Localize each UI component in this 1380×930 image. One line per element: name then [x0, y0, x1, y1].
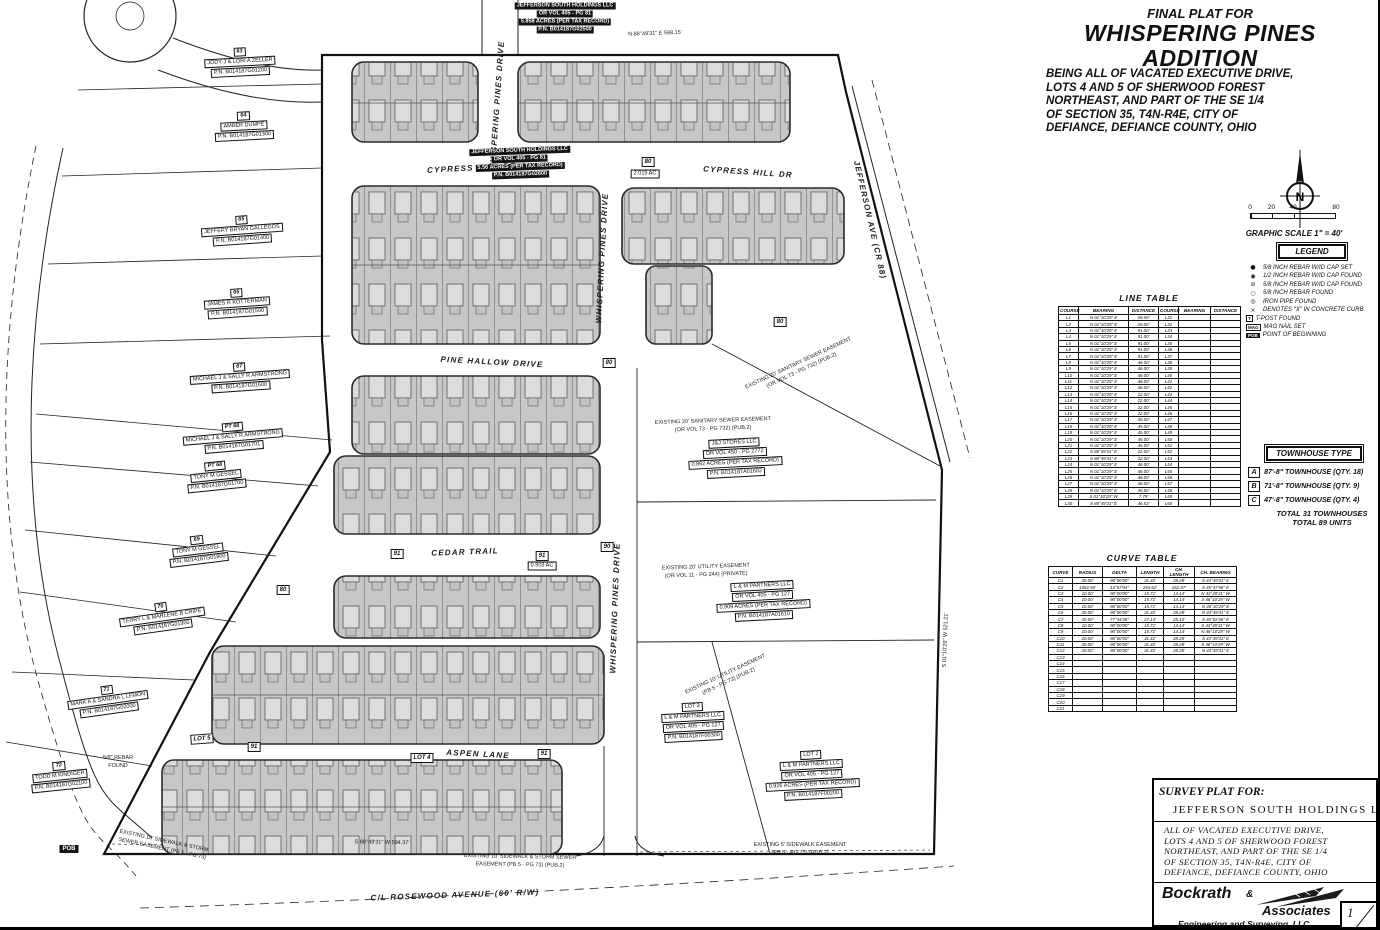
parcel-number: 70 [154, 602, 167, 613]
townhouse-row: B71'-8" TOWNHOUSE (QTY. 9) [1248, 481, 1380, 492]
annotation-line: 2.019 AC [631, 170, 660, 179]
curve-table-title: CURVE TABLE [1107, 553, 1178, 563]
survey-client-row: SURVEY PLAT FOR: JEFFERSON SOUTH HOLDING… [1154, 780, 1376, 822]
townhouse-type-key: C [1248, 495, 1260, 506]
sheet-number-box: 1 2 [1340, 901, 1378, 930]
annotation-line: POB [59, 845, 78, 853]
column-header: COURSE [1159, 307, 1179, 315]
curve-table: CURVERADIUSDELTALENGTHCH. LENGTHCH. BEAR… [1048, 566, 1237, 712]
townhouse-type-key: A [1248, 467, 1260, 478]
annotation-line: EXISTING 5' SIDEWALK EASEMENT [754, 842, 847, 849]
legend-items: ●5/8 INCH REBAR W/ID CAP SET◉1/2 INCH RE… [1246, 264, 1378, 338]
parcel-label: 72TODD M KINDIGERP.N. B014187G02100 [29, 758, 91, 793]
scale-tick: 40 [1289, 204, 1296, 211]
table-cell [1179, 500, 1211, 506]
legend-label: 1/2 INCH REBAR W/ID CAP FOUND [1263, 273, 1362, 279]
parcel-number: 63 [233, 47, 246, 57]
column-header: DELTA [1103, 567, 1137, 578]
annotation: LOT 3L & M PARTNERS LLCOR VOL 405 - PG 1… [661, 701, 726, 743]
parcel-number: 64 [237, 111, 250, 121]
annotation-line: LOT 2 [800, 750, 822, 760]
legend-label: DENOTES "X" IN CONCRETE CURB [1263, 307, 1364, 313]
legend-item: ●5/8 INCH REBAR W/ID CAP SET [1246, 264, 1378, 271]
annotation: POB [59, 845, 78, 853]
annotation: 0.903 AC [528, 562, 557, 571]
annotation-line: (OR VOL 73 - PG 732) (PUB.2) [675, 424, 752, 433]
annotation-line: OR VOL 405 - PG 81 [537, 11, 593, 18]
legend-item: POBPOINT OF BEGINNING [1246, 332, 1378, 338]
legend-item: ×DENOTES "X" IN CONCRETE CURB [1246, 307, 1378, 314]
annotation-line: LOT 4 [410, 753, 433, 763]
plat-description: BEING ALL OF VACATED EXECUTIVE DRIVE, LO… [1046, 68, 1356, 136]
parcel-label: PT 68MICHAEL J & SALLY R ARMSTRONGP.N. B… [182, 418, 284, 456]
iron-pipe-icon: ◎ [1246, 298, 1260, 305]
annotation-line: LOT 3 [681, 702, 703, 712]
column-header: DISTANCE [1211, 307, 1241, 315]
table-cell [1137, 705, 1164, 711]
column-header: CH. LENGTH [1164, 567, 1195, 578]
parcel-number: 67 [233, 362, 246, 372]
annotation-line: LOT 5 [190, 733, 214, 745]
scale-tick: 20 [1268, 204, 1275, 211]
legend-label: T-POST FOUND [1256, 316, 1300, 322]
plat-label-overlay: CYPRESS HILL DRCYPRESS HILL DRPINE HALLO… [0, 0, 1040, 930]
annotation-line: 91 [538, 749, 551, 759]
parcel-number: 71 [100, 685, 113, 696]
annotation: EXISTING 10' UTILITY EASEMENT(PB 5 - PG … [684, 653, 770, 703]
parcel-label: 70TERRY L & MARLENE B CRIPEP.N. B014187G… [118, 597, 207, 638]
townhouse-type-label: 87'-8" TOWNHOUSE (QTY. 18) [1264, 469, 1363, 476]
table-cell [1211, 500, 1241, 506]
annotation-line: P.N. B014187G02600 [492, 170, 550, 179]
table-row: L30S 88°49'31" E46.53'L60 [1059, 500, 1241, 506]
annotation: 2.019 AC [631, 170, 660, 179]
annotation-line: EXISTING 20' SANITARY SEWER EASEMENT [744, 336, 852, 391]
rebar-found-icon: ○ [1246, 290, 1260, 297]
parcel-number: 66 [230, 288, 243, 298]
firm-name-1: Bockrath [1162, 885, 1231, 903]
table-header-row: CURVERADIUSDELTALENGTHCH. LENGTHCH. BEAR… [1049, 567, 1237, 578]
parcel-label: 64AMBER DUMPEP.N. B014187G01300 [214, 110, 275, 142]
firm-name-2: Associates [1262, 903, 1331, 918]
annotation: L & M PARTNERS LLCOR VOL 405 - PG 1270.9… [715, 579, 810, 623]
street-label: PINE HALLOW DRIVE [440, 355, 543, 369]
annotation: S 88°49'31" W 594.37' [355, 839, 410, 846]
survey-client-name: JEFFERSON SOUTH HOLDINGS LLC [1173, 804, 1380, 816]
table-cell: 46.53' [1129, 500, 1159, 506]
annotation-line: 91 [248, 742, 261, 752]
annotation: 91 [391, 549, 404, 559]
survey-description-line: LOTS 4 AND 5 OF SHERWOOD FOREST [1164, 836, 1370, 847]
firm-block: Bockrath & Associates Engineering and Su… [1154, 883, 1376, 930]
column-header: CH. BEARING [1195, 567, 1237, 578]
survey-description-line: NORTHEAST, AND PART OF THE SE 1/4 [1164, 846, 1370, 857]
street-label: CYPRESS HILL DR [703, 164, 793, 179]
annotation-line: S 01°10'29" W 521.21' [942, 612, 950, 667]
street-label: JEFFERSON AVE (CR 88) [852, 160, 888, 280]
legend-label: POINT OF BEGINNING [1263, 332, 1327, 338]
survey-description-line: ALL OF VACATED EXECUTIVE DRIVE, [1164, 825, 1370, 836]
annotation: EXISTING 5' SIDEWALK EASEMENT(PB 5 - PG … [754, 842, 847, 856]
annotation-line: N 88°49'31" E 598.15' [628, 30, 682, 38]
annotation: LOT 2L & M PARTNERS LLCOR VOL 405 - PG 1… [764, 748, 860, 802]
annotation: EXISTING 20' SANITARY SEWER EASEMENT(OR … [744, 336, 855, 398]
annotation-line: 90 [601, 542, 614, 552]
annotation: 80 [603, 358, 616, 368]
parcel-label: PT 68TONY M GESSELP.N. B014187G01700 [185, 458, 247, 493]
townhouse-type: TOWNHOUSE TYPE A87'-8" TOWNHOUSE (QTY. 1… [1248, 446, 1380, 527]
table-cell: C21 [1049, 705, 1073, 711]
scale-bar [1250, 213, 1336, 219]
townhouse-row: A87'-8" TOWNHOUSE (QTY. 18) [1248, 467, 1380, 478]
parcel-label: 66JAMES R KOTTERMANP.N. B014187G01500 [203, 286, 271, 320]
parcel-number: 65 [235, 215, 248, 225]
annotation: S 01°10'29" W 521.21' [942, 612, 950, 667]
legend-item: ⊘5/8 INCH REBAR W/ID CAP FOUND [1246, 281, 1378, 288]
annotation-line: P.N. B014187F00200 [784, 789, 843, 801]
annotation: LOT 5 [190, 733, 214, 745]
column-header: LENGTH [1137, 567, 1164, 578]
scale-caption: GRAPHIC SCALE 1" = 40' [1238, 229, 1350, 238]
scale-ticks: 0204080 [1250, 204, 1336, 212]
firm-ampersand: & [1246, 889, 1253, 900]
annotation: 91 [536, 551, 549, 561]
annotation-line: 91 [391, 549, 404, 559]
parcel-label: 67MICHAEL J & SALLY R ARMSTRONGP.N. B014… [189, 359, 291, 395]
table-cell: L60 [1159, 500, 1179, 506]
legend-label: 5/8 INCH REBAR W/ID CAP SET [1263, 265, 1352, 271]
parcel-label: 71MARK A & SANDRA L LEMONP.N. B014187G02… [66, 680, 151, 720]
survey-title-block: SURVEY PLAT FOR: JEFFERSON SOUTH HOLDING… [1152, 778, 1378, 927]
scale-tick: 0 [1248, 204, 1252, 211]
line-table: COURSEBEARINGDISTANCECOURSEBEARINGDISTAN… [1058, 306, 1241, 507]
annotation: N 88°49'31" E 598.15' [628, 30, 682, 38]
annotation-line: P.N. B014187G02500 [536, 27, 593, 34]
townhouse-total-2: TOTAL 89 UNITS [1264, 518, 1380, 527]
survey-description: ALL OF VACATED EXECUTIVE DRIVE, LOTS 4 A… [1154, 822, 1376, 883]
annotation: LOT 4 [410, 753, 433, 763]
concrete-x-icon: × [1246, 307, 1260, 314]
annotation: EXISTING 10' SIDEWALK & STORMSEWER EASEM… [117, 829, 209, 862]
annotation-line: (PB 5 - PG 73) (PUB.2) [771, 850, 828, 857]
annotation-line: 5/8" REBAR [103, 755, 133, 762]
t-post-icon: T [1246, 315, 1253, 322]
table-header-row: COURSEBEARINGDISTANCECOURSEBEARINGDISTAN… [1059, 307, 1241, 315]
annotation: JEFFERSON SOUTH HOLDINGS LLCOR VOL 405 -… [469, 146, 571, 180]
legend-item: TT-POST FOUND [1246, 315, 1378, 322]
line-table-title: LINE TABLE [1119, 293, 1178, 303]
annotation-line: 5.858 ACRES (PER TAX RECORD) [519, 19, 611, 26]
plat-eyebrow: FINAL PLAT FOR [1040, 6, 1360, 21]
column-header: BEARING [1079, 307, 1129, 315]
annotation: 91 [248, 742, 261, 752]
survey-description-line: DEFIANCE, DEFIANCE COUNTY, OHIO [1164, 867, 1370, 878]
parcel-pn: P.N. B014187G01300 [215, 130, 274, 142]
rebar-set-icon: ● [1246, 264, 1260, 271]
legend-label: IRON PIPE FOUND [1263, 299, 1316, 305]
annotation: EXISTING 20' UTILITY EASEMENT(OR VOL 11 … [662, 562, 750, 579]
title-block: FINAL PLAT FOR WHISPERING PINES ADDITION [1040, 6, 1360, 71]
pob-icon: POB [1246, 333, 1260, 338]
legend-item: ◉1/2 INCH REBAR W/ID CAP FOUND [1246, 273, 1378, 280]
annotation-line: P.N. B014187F00300 [664, 731, 723, 743]
annotation: 91 [538, 749, 551, 759]
legend: LEGEND ●5/8 INCH REBAR W/ID CAP SET◉1/2 … [1246, 244, 1378, 340]
townhouse-title: TOWNHOUSE TYPE [1266, 446, 1362, 461]
annotation-line: P.N. B014187A01610 [734, 610, 793, 622]
townhouse-total-1: TOTAL 31 TOWNHOUSES [1264, 509, 1380, 518]
annotation: 80 [277, 585, 290, 595]
survey-plat-for-label: SURVEY PLAT FOR: [1159, 786, 1264, 798]
townhouse-type-label: 47'-8" TOWNHOUSE (QTY. 4) [1264, 497, 1359, 504]
annotation-line: JEFFERSON SOUTH HOLDINGS LLC [515, 3, 616, 10]
annotation-line: 80 [603, 358, 616, 368]
firm-line: Engineering and Surveying, LLC [1178, 919, 1309, 929]
description-line: NORTHEAST, AND PART OF THE SE 1/4 [1046, 95, 1356, 109]
parcel-label: 69TONY M GESSELP.N. B014187G01800 [167, 532, 229, 568]
column-header: DISTANCE [1129, 307, 1159, 315]
annotation-line: 0.903 AC [528, 562, 557, 571]
parcel-number: PT 68 [221, 422, 242, 433]
parcel-label: 63JODY J & LORI A ZELLERP.N. B014187G012… [204, 46, 277, 79]
table-cell [1073, 705, 1103, 711]
street-label: ASPEN LANE [446, 748, 510, 760]
annotation: EXISTING 20' SANITARY SEWER EASEMENT(OR … [655, 416, 772, 434]
parcel-pn: P.N. B014187G01200 [211, 66, 270, 78]
legend-label: 5/8 INCH REBAR FOUND [1263, 290, 1333, 296]
rebar-cap-found-icon: ◉ [1246, 273, 1260, 280]
scale-tick: 80 [1332, 204, 1339, 211]
mag-nail-icon: MAG [1246, 324, 1261, 331]
legend-label: MAG NAIL SET [1264, 324, 1306, 330]
column-header: CURVE [1049, 567, 1073, 578]
annotation-line: 91 [536, 551, 549, 561]
annotation: 80 [774, 317, 787, 327]
townhouse-type-label: 71'-8" TOWNHOUSE (QTY. 9) [1264, 483, 1359, 490]
legend-item: MAGMAG NAIL SET [1246, 324, 1378, 331]
annotation: JEFFERSON SOUTH HOLDINGS LLCOR VOL 405 -… [515, 3, 616, 34]
legend-item: ◎IRON PIPE FOUND [1246, 298, 1378, 305]
townhouse-type-key: B [1248, 481, 1260, 492]
table-cell [1103, 705, 1137, 711]
annotation-line: 80 [642, 157, 655, 167]
rebar-cap-found2-icon: ⊘ [1246, 281, 1260, 288]
description-line: DEFIANCE, DEFIANCE COUNTY, OHIO [1046, 122, 1356, 136]
annotation-line: P.N. B014187A01602 [706, 467, 765, 479]
survey-plat-page: CYPRESS HILL DRCYPRESS HILL DRPINE HALLO… [0, 0, 1380, 930]
parcel-number: 69 [190, 535, 203, 545]
legend-title: LEGEND [1278, 244, 1346, 259]
townhouse-row: C47'-8" TOWNHOUSE (QTY. 4) [1248, 495, 1380, 506]
sheet-current: 1 [1347, 905, 1354, 921]
table-cell [1164, 705, 1195, 711]
annotation-line: 80 [277, 585, 290, 595]
parcel-label: 65JEFFERY BRYAN GALLEGOSP.N. B014187G014… [200, 213, 284, 248]
table-row: C21 [1049, 705, 1237, 711]
survey-description-line: OF SECTION 35, T4N-R4E, CITY OF [1164, 857, 1370, 868]
annotation: 90 [601, 542, 614, 552]
annotation: EXISTING 10' SIDEWALK & STORM SEWEREASEM… [464, 853, 577, 869]
annotation-line: EASEMENT (PB 5 - PG 73) (PUB.2) [475, 861, 564, 869]
annotation-line: S 88°49'31" W 594.37' [355, 839, 410, 846]
parcel-number: 72 [52, 761, 65, 771]
street-label: WHISPERING PINES DRIVE [608, 542, 622, 673]
annotation-line: FOUND [108, 763, 128, 770]
description-line: LOTS 4 AND 5 OF SHERWOOD FOREST [1046, 82, 1356, 96]
street-label: WHISPERING PINES DRIVE [594, 192, 610, 323]
description-line: BEING ALL OF VACATED EXECUTIVE DRIVE, [1046, 68, 1356, 82]
plat-title-line1: WHISPERING PINES [1040, 21, 1360, 46]
column-header: COURSE [1059, 307, 1079, 315]
annotation: J&J STORES LLCOR VOL 450 - PG 27720.862 … [687, 436, 782, 480]
annotation: 5/8" REBARFOUND [103, 755, 133, 769]
annotation-line: EXISTING 10' UTILITY EASEMENT [684, 653, 767, 696]
table-cell: L30 [1059, 500, 1079, 506]
street-label: C/L ROSEWOOD AVENUE (60' R/W) [370, 888, 539, 903]
table-cell: S 88°49'31" E [1079, 500, 1129, 506]
table-cell [1195, 705, 1237, 711]
townhouse-rows: A87'-8" TOWNHOUSE (QTY. 18)B71'-8" TOWNH… [1248, 467, 1380, 506]
annotation-line: 80 [774, 317, 787, 327]
column-header: BEARING [1179, 307, 1211, 315]
description-line: OF SECTION 35, T4N-R4E, CITY OF [1046, 109, 1356, 123]
legend-item: ○5/8 INCH REBAR FOUND [1246, 290, 1378, 297]
annotation: 80 [642, 157, 655, 167]
street-label: CEDAR TRAIL [431, 546, 499, 557]
column-header: RADIUS [1073, 567, 1103, 578]
legend-label: 5/8 INCH REBAR W/ID CAP FOUND [1263, 282, 1362, 288]
north-letter: N [1296, 190, 1305, 204]
